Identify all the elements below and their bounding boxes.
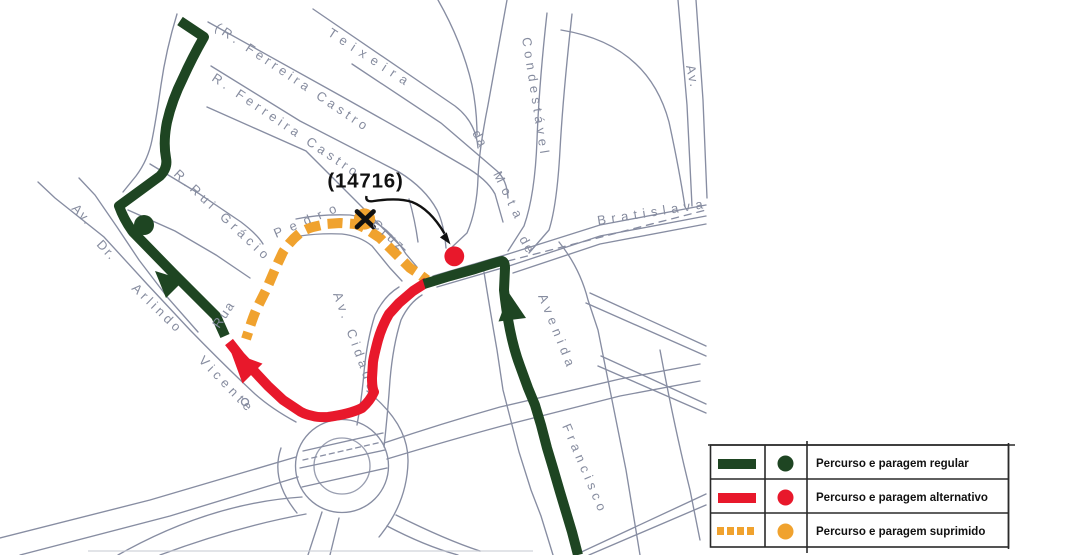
svg-text:Percurso e paragem alternativo: Percurso e paragem alternativo bbox=[816, 492, 988, 504]
svg-text:Percurso e paragem regular: Percurso e paragem regular bbox=[816, 458, 969, 470]
svg-text:(14716): (14716) bbox=[327, 170, 403, 193]
svg-text:Percurso e paragem suprimido: Percurso e paragem suprimido bbox=[816, 526, 985, 538]
